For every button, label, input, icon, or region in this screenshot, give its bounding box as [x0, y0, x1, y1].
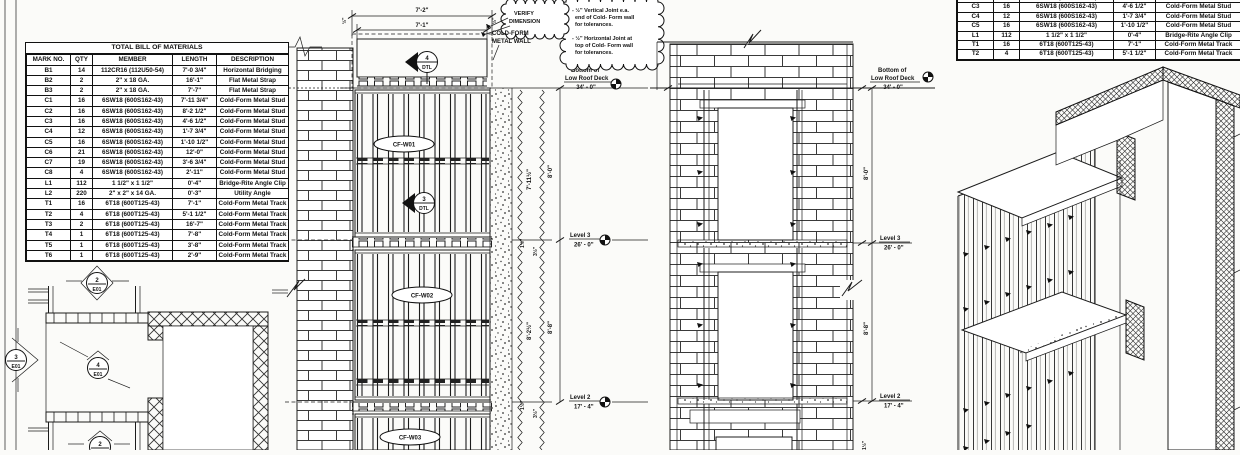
bom-cell-mark: C4 — [958, 12, 994, 21]
detail-sheet: DTL — [422, 65, 432, 71]
dim-storey1-panel: 7'-11½" — [526, 169, 533, 190]
table-row: C3 16 6SW18 (600S162-43) 4'-6 1/2" Cold-… — [27, 116, 289, 126]
bom-cell-length: 3'-8" — [173, 240, 217, 250]
bom-cell-qty: 16 — [71, 199, 93, 209]
wall-label: COLD-FORM METAL WALL — [492, 31, 531, 60]
bom-cell-qty: 12 — [994, 12, 1020, 21]
dim-track-c: 1½" — [519, 400, 526, 410]
bom-cell-member: 6SW18 (600S162-43) — [1020, 12, 1114, 21]
table-row: T1 16 6T18 (600T125-43) 7'-1" Cold-Form … — [27, 199, 289, 209]
bom-cell-member: 2" x 18 GA. — [93, 86, 173, 96]
table-row: B3 2 2" x 18 GA. 7'-7" Flat Metal Strap — [27, 86, 289, 96]
dim-track-d: 3½" — [532, 408, 539, 418]
dim-storey2-panel: 8'-2½" — [526, 322, 533, 340]
cold-form-wall-label: METAL WALL — [492, 39, 531, 45]
table-row: L2 220 2" x 2" x 14 GA. 0'-3" Utility An… — [27, 189, 289, 199]
dim-track-b: 3½" — [532, 246, 539, 256]
top-dimensions: 7'-2" 7'-1" ½" ½" — [341, 8, 498, 40]
bom-table: TOTAL BILL OF MATERIALS MARK NO. QTY MEM… — [25, 42, 289, 262]
table-row: L1 112 1 1/2" x 1 1/2" 0'-4" Bridge-Rite… — [958, 31, 1240, 40]
window-opening-upper — [718, 108, 793, 240]
bom-cell-mark: L1 — [958, 31, 994, 40]
level-name: Level 2 — [570, 395, 591, 401]
bom-cell-length: 0'-4" — [1114, 31, 1156, 40]
joint-note-1: for tolerances. — [575, 22, 613, 28]
table-row: C7 19 6SW18 (600S162-43) 3'-6 3/4" Cold-… — [27, 158, 289, 168]
level-name: Level 3 — [570, 233, 591, 239]
bom-header: QTY — [71, 55, 93, 66]
bom-cell-length: 2'-11" — [173, 168, 217, 178]
bom-cell-member: 6SW18 (600S162-43) — [93, 116, 173, 126]
bom-cell-length: 5'-1 1/2" — [173, 209, 217, 219]
bom-cell-length: 16'-1" — [173, 75, 217, 85]
bom-cell-mark: C6 — [27, 147, 71, 157]
level-marker-2: Level 2 17' - 4" — [512, 395, 648, 411]
dim-floor1: 8'-0" — [864, 167, 870, 180]
joint-note-2: for tolerances. — [575, 50, 613, 56]
bom-cell-qty: 4 — [994, 50, 1020, 59]
table-row: C4 12 6SW18 (600S162-43) 1'-7 3/4" Cold-… — [958, 12, 1240, 21]
dim-top-outer: 7'-2" — [416, 8, 429, 14]
panel-tag-label: CF-W03 — [399, 436, 422, 442]
bom-cell-member: 6SW18 (600S162-43) — [93, 168, 173, 178]
bom-cell-qty: 2 — [71, 219, 93, 229]
bom-cell-mark: C3 — [27, 116, 71, 126]
section-callout-bottom: 2 — [68, 431, 130, 450]
bom-cell-description: Cold-Form Metal Track — [217, 219, 289, 229]
level-marker-3: Level 3 26' - 0" — [512, 233, 648, 249]
elev2-dimensions: 8'-0" 8'-8" 1½" — [861, 85, 876, 450]
level-elevation: 34' - 0" — [883, 85, 903, 91]
bom-cell-member: 1 1/2" x 1 1/2" — [93, 178, 173, 188]
level-name: Low Roof Deck — [871, 76, 915, 82]
bom-cell-qty: 220 — [71, 189, 93, 199]
datum-icon — [611, 79, 621, 89]
bom-header-row: MARK NO. QTY MEMBER LENGTH DESCRIPTION — [27, 55, 289, 66]
table-row: B1 14 112CR16 (112U50-54) 7'-0 3/4" Hori… — [27, 65, 289, 75]
bom-cell-member: 6SW18 (600S162-43) — [93, 137, 173, 147]
bom-cell-description: Cold-Form Metal Track — [217, 240, 289, 250]
bom-cell-length: 3'-6 3/4" — [173, 158, 217, 168]
bom-cell-description: Cold-Form Metal Track — [217, 230, 289, 240]
level-marker-3-2: Level 3 26' - 0" — [879, 236, 910, 252]
bom-cell-description: Cold-Form Metal Stud — [217, 116, 289, 126]
bom-cell-description: Cold-Form Metal Track — [217, 199, 289, 209]
detail-callout-mid: 4 E01 — [60, 342, 130, 388]
level-name: Low Roof Deck — [565, 76, 609, 82]
bom-cell-member: 112CR16 (112U50-54) — [93, 65, 173, 75]
section-callout-left: 3 E01 — [6, 328, 39, 392]
bom-cell-qty: 4 — [71, 209, 93, 219]
callout-sheet: E01 — [94, 372, 103, 378]
bom-table-partial: C2 16 6SW18 (600S162-43) 8'-2 1/2" Cold-… — [956, 0, 1240, 61]
table-row: T4 1 6T18 (600T125-43) 7'-8" Cold-Form M… — [27, 230, 289, 240]
level3-track-band — [352, 237, 492, 250]
bom-cell-description: Flat Metal Strap — [217, 75, 289, 85]
bom-cell-mark: T5 — [27, 240, 71, 250]
bom-cell-member: 6T18 (600T125-43) — [1020, 41, 1114, 50]
callout-sheet: E01 — [93, 287, 102, 293]
joint-note-2: top of Cold- Form wall — [575, 43, 634, 49]
table-row: C5 16 6SW18 (600S162-43) 1'-10 1/2" Cold… — [958, 22, 1240, 31]
plan-detail: 2 E01 3 E01 4 E01 2 — [6, 266, 289, 450]
bom-cell-length: 7'-7" — [173, 86, 217, 96]
datum-icon — [923, 72, 933, 82]
table-row: T6 1 6T18 (600T125-43) 2'-9" Cold-Form M… — [27, 250, 289, 260]
dim-track-a: 1½" — [519, 238, 526, 248]
bom-cell-mark: B3 — [27, 86, 71, 96]
level-elevation: 17' - 4" — [884, 404, 904, 410]
window-opening-lower — [718, 272, 793, 400]
bom-cell-member: 6SW18 (600S162-43) — [93, 147, 173, 157]
bom-cell-mark: L2 — [27, 189, 71, 199]
storey-dimensions: 7'-11½" 8'-0" 8'-2½" 8'-8" 1½" 3½" 1½" 3… — [518, 85, 564, 450]
bom-cell-mark: C5 — [958, 22, 994, 31]
bom-cell-description: Cold-Form Metal Stud — [217, 106, 289, 116]
dim-small: 1½" — [861, 440, 868, 450]
bom-cell-qty: 112 — [71, 178, 93, 188]
bom-cell-mark: T2 — [958, 50, 994, 59]
bom-cell-description: Utility Angle — [217, 189, 289, 199]
bom-cell-member: 6SW18 (600S162-43) — [93, 106, 173, 116]
bom-header: LENGTH — [173, 55, 217, 66]
bom-cell-mark: C7 — [27, 158, 71, 168]
level-elevation: 17' - 4" — [574, 405, 594, 411]
dim-floor2: 8'-8" — [864, 322, 870, 335]
bom-cell-description: Cold-Form Metal Track — [217, 209, 289, 219]
table-row: T2 4 6T18 (600T125-43) 5'-1 1/2" Cold-Fo… — [958, 50, 1240, 59]
level-name: Bottom of — [878, 68, 907, 74]
level-elevation: 26' - 0" — [884, 246, 904, 252]
bom-cell-length: 7'-1" — [1114, 41, 1156, 50]
iso-wall-cut — [1117, 132, 1135, 200]
bom-cell-mark: C4 — [27, 127, 71, 137]
table-row: T3 2 6T18 (600T125-43) 16'-7" Cold-Form … — [27, 219, 289, 229]
bom-cell-member: 6SW18 (600S162-43) — [93, 96, 173, 106]
panel-cf-w03: CF-W03 — [355, 414, 490, 450]
bom-cell-qty: 16 — [994, 41, 1020, 50]
bom-cell-qty: 21 — [71, 147, 93, 157]
bom-cell-member: 6SW18 (600S162-43) — [1020, 22, 1114, 31]
drawing-sheet: 7'-2" 7'-1" ½" ½" 4 DTL — [0, 0, 1240, 450]
isometric-view — [958, 67, 1240, 450]
bom-cell-mark: C2 — [27, 106, 71, 116]
joint-note-1: - ½" Vertical Joint e.a. — [572, 7, 629, 14]
bom-cell-length: 7'-11 3/4" — [173, 96, 217, 106]
bom-cell-description: Cold-Form Metal Track — [217, 250, 289, 260]
bom-cell-description: Cold-Form Metal Stud — [217, 137, 289, 147]
bom-cell-description: Cold-Form Metal Stud — [217, 158, 289, 168]
grout-band — [490, 88, 512, 450]
bom-cell-description: Cold-Form Metal Stud — [217, 96, 289, 106]
plan-hatched-walls — [148, 312, 268, 450]
iso-wall-cut — [1126, 300, 1144, 360]
dim-joint-left: ½" — [341, 17, 348, 24]
bom-cell-description: Cold-Form Metal Stud — [1156, 22, 1240, 31]
verify-note: VERIFY — [514, 11, 534, 17]
bom-cell-description: Bridge-Rite Angle Clip — [1156, 31, 1240, 40]
bom-cell-member: 6T18 (600T125-43) — [93, 250, 173, 260]
table-row: C5 16 6SW18 (600S162-43) 1'-10 1/2" Cold… — [27, 137, 289, 147]
table-row: B2 2 2" x 18 GA. 16'-1" Flat Metal Strap — [27, 75, 289, 85]
level-marker-roof: Bottom of Low Roof Deck 34' - 0" — [564, 68, 621, 91]
bom-cell-length: 16'-7" — [173, 219, 217, 229]
bom-cell-length: 1'-7 3/4" — [173, 127, 217, 137]
callout-sheet: E01 — [12, 364, 21, 370]
verify-note: DIMENSION — [509, 19, 540, 25]
bom-cell-mark: C8 — [27, 168, 71, 178]
table-row: L1 112 1 1/2" x 1 1/2" 0'-4" Bridge-Rite… — [27, 178, 289, 188]
bom-cell-description: Cold-Form Metal Track — [1156, 41, 1240, 50]
table-row: T2 4 6T18 (600T125-43) 5'-1 1/2" Cold-Fo… — [27, 209, 289, 219]
section-callout-top: 2 E01 — [66, 266, 129, 300]
bom-cell-mark: C1 — [27, 96, 71, 106]
table-row: C1 16 6SW18 (600S162-43) 7'-11 3/4" Cold… — [27, 96, 289, 106]
bom-cell-member: 2" x 2" x 14 GA. — [93, 189, 173, 199]
panel-tag-label: CF-W02 — [411, 294, 434, 300]
bom-cell-mark: T1 — [27, 199, 71, 209]
bom-cell-length: 5'-1 1/2" — [1114, 50, 1156, 59]
bom-cell-qty: 16 — [71, 116, 93, 126]
bom-cell-length: 1'-10 1/2" — [173, 137, 217, 147]
bom-cell-member: 6SW18 (600S162-43) — [1020, 3, 1114, 12]
bom-cell-mark: B2 — [27, 75, 71, 85]
bom-cell-length: 7'-8" — [173, 230, 217, 240]
sheet-border-line — [5, 0, 16, 450]
bom-cell-length: 7'-1" — [173, 199, 217, 209]
bom-cell-length: 0'-4" — [173, 178, 217, 188]
bom-cell-length: 4'-6 1/2" — [1114, 3, 1156, 12]
level-name: Level 2 — [880, 394, 901, 400]
table-row: C2 16 6SW18 (600S162-43) 8'-2 1/2" Cold-… — [27, 106, 289, 116]
bom-cell-description: Flat Metal Strap — [217, 86, 289, 96]
bom-cell-member: 6T18 (600T125-43) — [93, 240, 173, 250]
level-elevation: 34' - 0" — [576, 85, 596, 91]
masonry-elevation: 8'-0" 8'-8" 1½" Bottom of Low Roof Deck … — [650, 30, 935, 450]
bom-cell-member: 6T18 (600T125-43) — [93, 209, 173, 219]
table-row: C6 21 6SW18 (600S162-43) 12'-0" Cold-For… — [27, 147, 289, 157]
panel-tag-label: CF-W01 — [393, 143, 416, 149]
cold-form-wall-label: COLD-FORM — [492, 31, 529, 37]
bom-cell-length: 12'-0" — [173, 147, 217, 157]
datum-icon — [600, 397, 610, 407]
bom-cell-mark: T2 — [27, 209, 71, 219]
bom-cell-length: 1'-10 1/2" — [1114, 22, 1156, 31]
bom-cell-qty: 12 — [71, 127, 93, 137]
bom-cell-qty: 16 — [71, 137, 93, 147]
bom-cell-qty: 112 — [994, 31, 1020, 40]
bom-cell-qty: 16 — [71, 106, 93, 116]
table-row: T1 16 6T18 (600T125-43) 7'-1" Cold-Form … — [958, 41, 1240, 50]
dim-top-inner: 7'-1" — [416, 23, 429, 29]
bom-title: TOTAL BILL OF MATERIALS — [26, 43, 288, 54]
bom-cell-length: 4'-6 1/2" — [173, 116, 217, 126]
level-elevation: 26' - 0" — [574, 243, 594, 249]
bom-cell-mark: C5 — [27, 137, 71, 147]
bom-header: MARK NO. — [27, 55, 71, 66]
bom-cell-mark: T3 — [27, 219, 71, 229]
bom-cell-length: 0'-3" — [173, 189, 217, 199]
bom-cell-description: Bridge-Rite Angle Clip — [217, 178, 289, 188]
bom-cell-mark: L1 — [27, 178, 71, 188]
level-name: Level 3 — [880, 236, 901, 242]
level-marker-2-2: Level 2 17' - 4" — [879, 394, 910, 410]
bom-cell-qty: 2 — [71, 86, 93, 96]
bom-cell-qty: 16 — [994, 3, 1020, 12]
level2-track-band — [352, 402, 492, 414]
bom-cell-length: 8'-2 1/2" — [173, 106, 217, 116]
bom-cell-member: 2" x 18 GA. — [93, 75, 173, 85]
bom-cell-mark: T6 — [27, 250, 71, 260]
bom-cell-description: Cold-Form Metal Stud — [1156, 3, 1240, 12]
central-elevation: 7'-2" 7'-1" ½" ½" 4 DTL — [340, 8, 648, 450]
table-row: C3 16 6SW18 (600S162-43) 4'-6 1/2" Cold-… — [958, 3, 1240, 12]
bom-cell-qty: 1 — [71, 250, 93, 260]
panel-cf-w01: CF-W01 3 DTL — [355, 90, 490, 237]
table-row: C4 12 6SW18 (600S162-43) 1'-7 3/4" Cold-… — [27, 127, 289, 137]
bom-cell-length: 7'-0 3/4" — [173, 65, 217, 75]
iso-tall-wall — [1168, 82, 1240, 450]
dim-storey1-floor: 8'-0" — [548, 165, 554, 178]
bom-cell-qty: 4 — [71, 168, 93, 178]
bom-cell-length: 2'-9" — [173, 250, 217, 260]
bom-cell-qty: 1 — [71, 240, 93, 250]
bom-cell-description: Cold-Form Metal Track — [1156, 50, 1240, 59]
bom-cell-mark: C3 — [958, 3, 994, 12]
bom-cell-member: 6T18 (600T125-43) — [93, 199, 173, 209]
bom-cell-qty: 16 — [994, 22, 1020, 31]
bom-cell-description: Cold-Form Metal Stud — [217, 168, 289, 178]
panel-cf-w02: CF-W02 — [355, 250, 490, 400]
bom-cell-qty: 2 — [71, 75, 93, 85]
joint-note-1: end of Cold- Form wall — [575, 15, 635, 21]
bom-cell-member: 6SW18 (600S162-43) — [93, 158, 173, 168]
bom-cell-qty: 19 — [71, 158, 93, 168]
bom-cell-description: Horizontal Bridging — [217, 65, 289, 75]
detail-sheet: DTL — [419, 206, 429, 212]
bom-cell-description: Cold-Form Metal Stud — [1156, 12, 1240, 21]
bom-cell-member: 6T18 (600T125-43) — [1020, 50, 1114, 59]
bom-header: DESCRIPTION — [217, 55, 289, 66]
bom-cell-member: 6T18 (600T125-43) — [93, 219, 173, 229]
bom-cell-mark: T1 — [958, 41, 994, 50]
bom-cell-member: 1 1/2" x 1 1/2" — [1020, 31, 1114, 40]
bom-cell-description: Cold-Form Metal Stud — [217, 127, 289, 137]
bom-cell-description: Cold-Form Metal Stud — [217, 147, 289, 157]
bom-cell-mark: T4 — [27, 230, 71, 240]
table-row: C8 4 6SW18 (600S162-43) 2'-11" Cold-Form… — [27, 168, 289, 178]
bom-cell-member: 6SW18 (600S162-43) — [93, 127, 173, 137]
table-row: T5 1 6T18 (600T125-43) 3'-8" Cold-Form M… — [27, 240, 289, 250]
bom-header: MEMBER — [93, 55, 173, 66]
bom-cell-mark: B1 — [27, 65, 71, 75]
joint-note-2: - ½" Horizontal Joint at — [572, 35, 632, 42]
bom-cell-qty: 16 — [71, 96, 93, 106]
bom-cell-qty: 1 — [71, 230, 93, 240]
bom-cell-qty: 14 — [71, 65, 93, 75]
dim-storey2-floor: 8'-8" — [548, 321, 554, 334]
cmu-pier-strip — [281, 37, 353, 450]
bom-cell-member: 6T18 (600T125-43) — [93, 230, 173, 240]
datum-icon — [600, 235, 610, 245]
bom-cell-length: 1'-7 3/4" — [1114, 12, 1156, 21]
